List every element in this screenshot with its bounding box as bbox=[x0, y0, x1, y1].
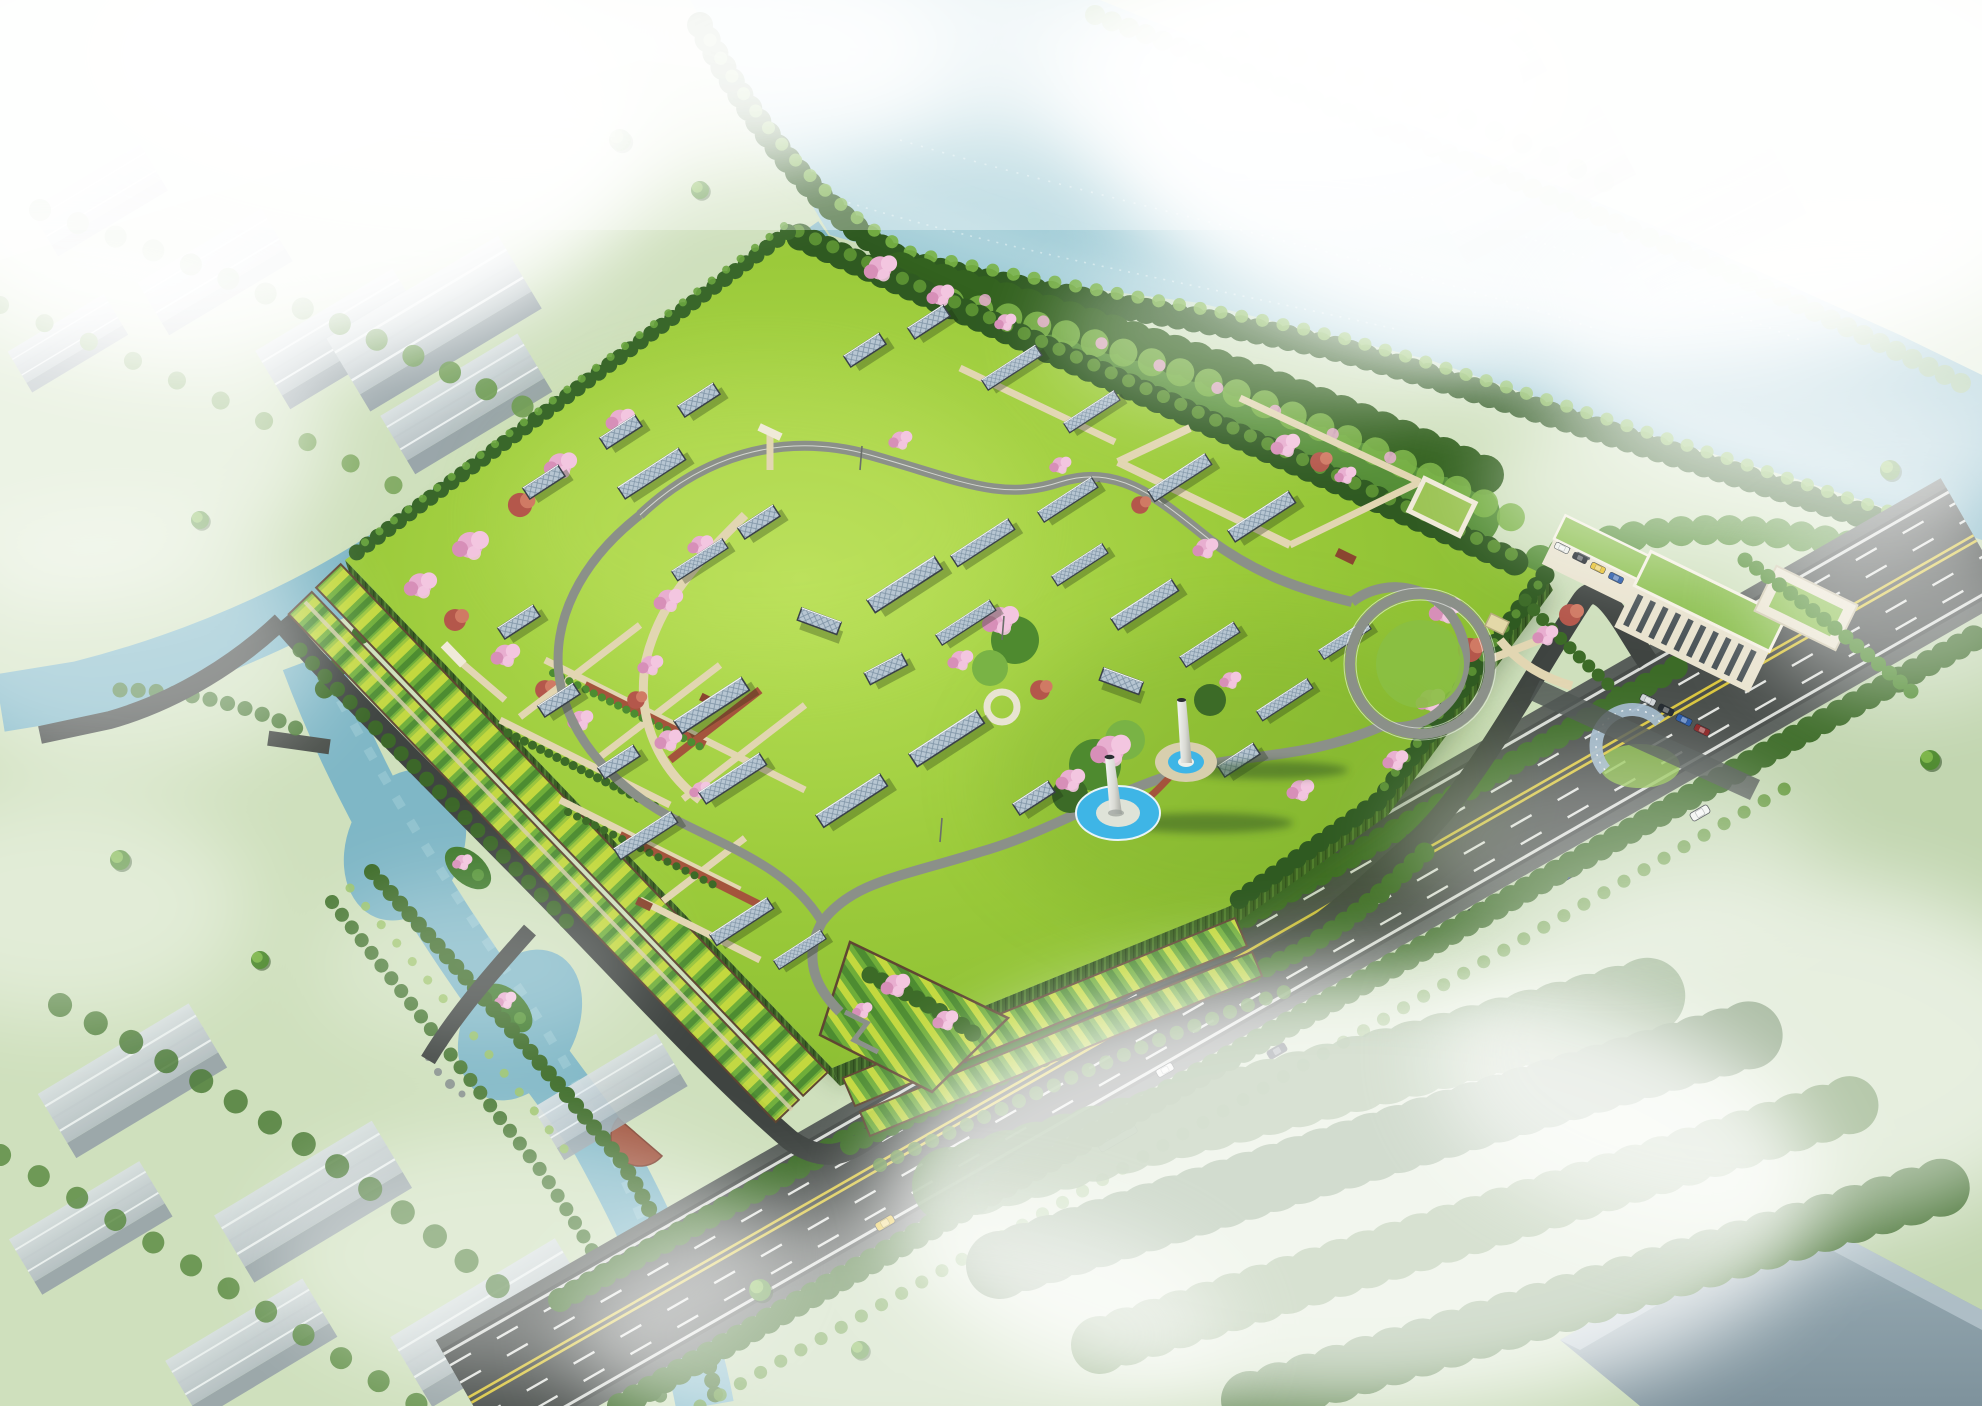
aerial-rendering bbox=[0, 0, 1982, 1406]
